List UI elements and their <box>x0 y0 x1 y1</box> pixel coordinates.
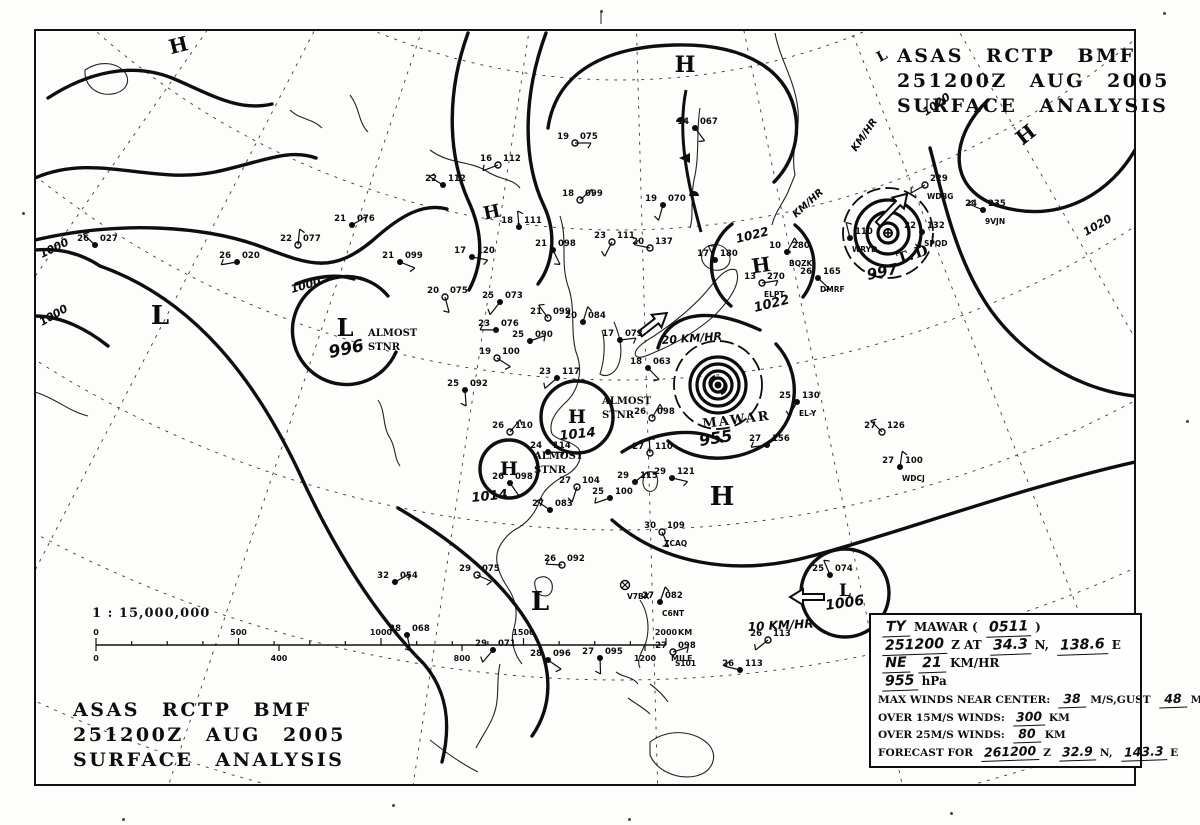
printed-label: ( <box>972 620 978 634</box>
margin-speck <box>1163 12 1166 15</box>
station-plot: 20084 <box>565 307 606 325</box>
handwritten-value: TY <box>882 619 911 638</box>
station-value: 20 <box>427 286 439 296</box>
coastline <box>616 672 668 714</box>
station-plot: 26027 <box>77 232 118 248</box>
handwritten-label: 996 <box>327 336 366 363</box>
station-plot: 27083 <box>532 498 573 513</box>
scale-bar: 0500100015002000KM04008001200MILE <box>92 621 712 667</box>
printed-label: hPa <box>922 674 947 688</box>
station-value: 27 <box>559 476 571 486</box>
info-box-row: FORECAST FOR261200Z32.9N,143.3E <box>878 744 1133 762</box>
station-value: 104 <box>582 476 600 486</box>
handwritten-label: 1006 <box>824 593 865 614</box>
station-value: 18 <box>630 357 642 367</box>
printed-label: M/S,GUST <box>1090 694 1150 706</box>
station-value: 19 <box>479 347 491 357</box>
handwritten-label: KM/HR <box>849 117 879 154</box>
station-value: 26 <box>634 407 646 417</box>
station-value: 092 <box>470 379 488 389</box>
typhoon-info-box: TYMAWAR(0511)251200Z AT34.3N,138.6ENE21K… <box>869 613 1142 768</box>
coastline <box>85 64 128 95</box>
station-plot: 21098 <box>535 239 576 264</box>
pressure-center-l: L <box>874 47 890 66</box>
info-box-row: OVER 25M/S WINDS:80KM <box>878 726 1133 744</box>
handwritten-value: 48 <box>1158 691 1187 708</box>
station-plot: 27126 <box>864 419 905 435</box>
printed-label: N, <box>1100 747 1113 759</box>
info-box-row: OVER 15M/S WINDS:300KM <box>878 709 1133 727</box>
station-plot: 18099 <box>562 189 603 203</box>
station-plot: 32054 <box>377 571 418 585</box>
coastline <box>430 740 478 772</box>
pressure-center-h: H <box>481 201 502 225</box>
handwritten-label: 20 KM/HR <box>661 330 722 347</box>
station-value: 092 <box>567 554 585 564</box>
isobar <box>35 155 316 178</box>
station-value: 084 <box>588 311 606 321</box>
station-plot: 17180 <box>697 245 738 263</box>
station-plot: 23111 <box>594 231 635 256</box>
isobar <box>548 45 797 182</box>
station-value: 26 <box>219 251 231 261</box>
station-value: 26 <box>544 554 556 564</box>
station-value: 098 <box>558 239 576 249</box>
handwritten-label: 955 <box>698 426 734 450</box>
station-plot: 22077 <box>280 229 321 248</box>
margin-speck <box>122 818 125 821</box>
svg-text:1000: 1000 <box>370 628 393 637</box>
station-value: 100 <box>905 456 923 466</box>
station-plot: 17073 <box>602 329 643 344</box>
station-value: 20 <box>565 311 577 321</box>
printed-label: OVER 15M/S WINDS: <box>878 712 1005 724</box>
station-value: 121 <box>677 467 695 477</box>
station-value: ZCAQ <box>664 539 687 548</box>
title-block-bottom-left: ASAS RCTP BMF 251200Z AUG 2005 SURFACE A… <box>73 698 346 773</box>
movement-arrow-icon <box>790 589 824 605</box>
station-value: 130 <box>802 391 820 401</box>
printed-label: E <box>1170 747 1178 759</box>
station-value: 112 <box>503 154 521 164</box>
station-value: 16 <box>480 154 492 164</box>
station-value: 27 <box>632 442 644 452</box>
printed-label: N, <box>1035 638 1049 652</box>
station-plot: 19075 <box>557 132 598 148</box>
station-plot: 27110 <box>632 437 673 456</box>
station-plot: 20075 <box>427 286 468 312</box>
station-plot: 25100 <box>592 487 633 503</box>
station-value: 18 <box>562 189 574 199</box>
station-value: 29 <box>654 467 666 477</box>
station-plot: 10280BQZK <box>769 238 813 268</box>
station-plot: 25090 <box>512 330 553 344</box>
isobar <box>100 266 447 762</box>
station-value: 126 <box>887 421 905 431</box>
printed-label: MAWAR <box>914 620 968 634</box>
station-plot: 27100WDCJ <box>882 451 925 483</box>
station-value: 21 <box>535 239 547 249</box>
svg-text:800: 800 <box>454 654 471 663</box>
station-value: 020 <box>242 251 260 261</box>
station-value: 063 <box>653 357 671 367</box>
station-value: 113 <box>745 659 763 669</box>
station-value: 26 <box>722 659 734 669</box>
margin-speck <box>600 10 603 13</box>
info-box-row: 251200Z AT34.3N,138.6E <box>878 637 1133 655</box>
isobar <box>612 462 1135 566</box>
handwritten-value: 21 <box>918 655 947 674</box>
station-value: 26 <box>77 234 89 244</box>
station-value: 098 <box>515 472 533 482</box>
margin-speck <box>1186 420 1189 423</box>
margin-speck <box>392 804 395 807</box>
station-value: 23 <box>594 231 606 241</box>
station-value: 21 <box>382 251 394 261</box>
station-value: EL-Y <box>799 409 817 418</box>
station-value: 29 <box>459 564 471 574</box>
station-value: 075 <box>580 132 598 142</box>
handwritten-label: KM/HR <box>791 187 826 220</box>
handwritten-value: 251200 <box>882 636 948 656</box>
station-plot: 25074 <box>812 560 853 578</box>
station-plot: 19070 <box>645 194 686 220</box>
station-plot: 17120 <box>454 246 495 265</box>
coastline <box>35 392 88 416</box>
handwritten-label: 1022 <box>752 293 791 316</box>
station-value: 26 <box>492 421 504 431</box>
pressure-center-h: H <box>568 406 586 428</box>
station-value: 26 <box>492 472 504 482</box>
station-value: 21 <box>530 307 542 317</box>
handwritten-value: 300 <box>1013 708 1046 726</box>
station-value: 21 <box>334 214 346 224</box>
station-value: 27 <box>749 434 761 444</box>
printed-label: Z <box>1043 747 1051 759</box>
handwritten-label: 1014 <box>471 487 509 506</box>
station-value: 073 <box>505 291 523 301</box>
station-value: 027 <box>100 234 118 244</box>
station-value: 110 <box>655 442 673 452</box>
station-value: 17 <box>697 249 709 259</box>
station-value: 073 <box>625 329 643 339</box>
station-value: 25 <box>482 291 494 301</box>
pressure-center-h: H <box>675 52 696 78</box>
station-value: 110 <box>855 227 873 237</box>
handwritten-value: 138.6 <box>1057 636 1108 656</box>
station-value: 082 <box>665 591 683 601</box>
handwritten-value: 0511 <box>985 618 1031 638</box>
handwritten-label: 1000 <box>37 302 70 329</box>
station-value: 27 <box>864 421 876 431</box>
coastline <box>772 33 798 225</box>
margin-speck <box>950 812 953 815</box>
station-value: 067 <box>700 117 718 127</box>
station-value: WDBG <box>927 192 953 201</box>
station-value: 075 <box>450 286 468 296</box>
handwritten-value: 80 <box>1013 726 1042 743</box>
station-value: 18 <box>501 216 513 226</box>
printed-label: M/S <box>1191 694 1200 706</box>
station-value: 156 <box>772 434 790 444</box>
station-value: 090 <box>535 330 553 340</box>
station-value: 22 <box>425 174 437 184</box>
center-note-label: ALMOST <box>367 328 418 339</box>
info-box-row: MAX WINDS NEAR CENTER:38M/S,GUST48M/S <box>878 691 1133 709</box>
isobar <box>48 70 272 106</box>
handwritten-value: 261200 <box>981 742 1040 761</box>
station-plot: 25130EL-Y <box>779 391 820 418</box>
margin-speck <box>22 212 25 215</box>
station-plot: 26098 <box>634 404 675 421</box>
handwritten-value: 955 <box>882 672 918 691</box>
station-plot: 21099 <box>382 251 423 272</box>
station-value: 074 <box>835 564 853 574</box>
svg-text:500: 500 <box>230 628 247 637</box>
station-value: 27 <box>882 456 894 466</box>
title-line: 251200Z AUG 2005 <box>73 723 346 748</box>
grid-meridian <box>400 0 620 825</box>
station-value: 075 <box>482 564 500 574</box>
station-value: 165 <box>823 267 841 277</box>
station-value: 109 <box>667 521 685 531</box>
station-plot: 18063 <box>630 357 671 381</box>
station-value: WDCJ <box>902 474 925 483</box>
station-value: 076 <box>501 319 519 329</box>
station-plot: 25092 <box>447 379 488 406</box>
station-plot: 229WDBG <box>911 174 953 201</box>
handwritten-label: 1014 <box>559 425 597 444</box>
station-value: 132 <box>927 221 945 231</box>
station-value: 054 <box>400 571 418 581</box>
station-value: 27 <box>532 499 544 509</box>
coastline <box>290 95 368 132</box>
coastline <box>476 664 500 748</box>
station-value: 30 <box>644 521 656 531</box>
station-value: 120 <box>477 246 495 256</box>
printed-label: E <box>1112 638 1121 652</box>
station-value: 25 <box>447 379 459 389</box>
station-value: 280 <box>792 241 810 251</box>
svg-text:1200: 1200 <box>634 654 657 663</box>
station-value: 070 <box>668 194 686 204</box>
station-value: 17 <box>602 329 614 339</box>
station-value: 229 <box>930 174 948 184</box>
svg-text:400: 400 <box>271 654 288 663</box>
station-value: 24 <box>965 199 977 209</box>
svg-text:2000: 2000 <box>655 628 678 637</box>
scale-ratio: 1 : 15,000,000 <box>92 606 712 621</box>
station-value: 077 <box>303 234 321 244</box>
handwritten-label: 997 <box>865 260 900 284</box>
station-value: 25 <box>779 391 791 401</box>
station-value: 23 <box>478 319 490 329</box>
station-value: 100 <box>615 487 633 497</box>
station-value: 13 <box>744 272 756 282</box>
station-value: 22 <box>280 234 292 244</box>
svg-text:1500: 1500 <box>512 628 535 637</box>
printed-label: FORECAST FOR <box>878 747 973 759</box>
coastline <box>650 733 714 777</box>
printed-label: ) <box>1035 620 1041 634</box>
map-scale: 1 : 15,000,000 0500100015002000KM0400800… <box>92 606 712 671</box>
pressure-center-h: H <box>1011 119 1041 150</box>
station-plot: 26020 <box>219 251 260 265</box>
station-value: 24 <box>530 441 542 451</box>
station-plot: 19100 <box>479 347 520 369</box>
weather-chart-page: T.DMAWARHLHHHLLHLALMOSTSTNRHALMOSTSTNRHA… <box>0 0 1200 825</box>
handwritten-value: 34.3 <box>989 636 1031 655</box>
station-plot: 18111 <box>501 211 542 230</box>
station-value: 22 <box>904 221 916 231</box>
svg-text:KM: KM <box>678 628 692 637</box>
station-value: 111 <box>524 216 542 226</box>
station-value: 32 <box>377 571 389 581</box>
station-value: 26 <box>800 267 812 277</box>
margin-speck <box>628 818 631 821</box>
title-line: ASAS RCTP BMF <box>73 698 346 723</box>
handwritten-label: 1022 <box>734 224 770 246</box>
pressure-center-l: L <box>151 301 169 331</box>
station-value: 137 <box>655 237 673 247</box>
svg-text:MILE: MILE <box>671 654 693 663</box>
handwritten-value: NE <box>882 655 911 674</box>
printed-label: KM <box>1045 729 1066 741</box>
station-plot: 29115 <box>617 471 658 485</box>
station-value: 20 <box>632 237 644 247</box>
station-plot: 26092 <box>544 554 585 568</box>
station-value: 29 <box>617 471 629 481</box>
coastline <box>378 400 400 466</box>
info-box-row: 955hPa <box>878 673 1133 691</box>
title-line: SURFACE ANALYSIS <box>73 748 346 773</box>
station-value: 19 <box>645 194 657 204</box>
station-plot: 25073 <box>482 291 523 315</box>
station-value: 27 <box>642 591 654 601</box>
station-value: 9VJN <box>985 217 1005 226</box>
station-value: SPQD <box>924 239 948 248</box>
center-note-label: STNR <box>602 410 635 421</box>
station-value: 112 <box>448 174 466 184</box>
station-value: 19 <box>557 132 569 142</box>
handwritten-value: 38 <box>1058 691 1087 708</box>
station-plot: 20137 <box>632 237 673 251</box>
printed-label: Z AT <box>951 638 982 652</box>
station-plot: 21076 <box>334 214 375 228</box>
station-plot: 110WRYD <box>846 222 877 254</box>
center-note-label: STNR <box>368 342 401 353</box>
station-plot: 22112 <box>425 174 466 188</box>
svg-text:0: 0 <box>93 628 99 637</box>
station-plot: 16112 <box>480 154 521 171</box>
station-value: 23 <box>539 367 551 377</box>
handwritten-label: 10 KM/HR <box>747 617 813 634</box>
title-block-top-right: ASAS RCTP BMF 251200Z AUG 2005 SURFACE A… <box>897 44 1170 119</box>
isobar <box>711 224 732 306</box>
svg-text:0: 0 <box>93 654 99 663</box>
station-value: 235 <box>988 199 1006 209</box>
station-value: WRYD <box>852 245 877 254</box>
station-value: 083 <box>555 499 573 509</box>
station-value: 098 <box>657 407 675 417</box>
station-value: 117 <box>562 367 580 377</box>
handwritten-value: 143.3 <box>1120 743 1166 761</box>
station-value: 099 <box>405 251 423 261</box>
station-plot: 26110 <box>492 420 533 435</box>
printed-label: OVER 25M/S WINDS: <box>878 729 1005 741</box>
handwritten-value: 32.9 <box>1059 743 1096 761</box>
printed-label: MAX WINDS NEAR CENTER: <box>878 694 1050 706</box>
station-value: DMRF <box>820 285 845 294</box>
station-value: 25 <box>592 487 604 497</box>
station-plot: 26113 <box>722 659 763 673</box>
info-box-row: NE21KM/HR <box>878 655 1133 673</box>
station-value: 25 <box>812 564 824 574</box>
station-value: 100 <box>502 347 520 357</box>
station-plot: 29121 <box>654 467 695 486</box>
station-plot: 242359VJN <box>965 199 1006 226</box>
station-plot: 22132SPQD <box>904 221 947 248</box>
pressure-center-h: H <box>166 31 190 59</box>
station-value: 17 <box>454 246 466 256</box>
info-box-row: TYMAWAR(0511) <box>878 619 1133 637</box>
printed-label: KM/HR <box>950 656 999 670</box>
title-line: ASAS RCTP BMF <box>897 44 1170 69</box>
printed-label: KM <box>1049 712 1070 724</box>
center-note-label: STNR <box>534 465 567 476</box>
station-value: 14 <box>677 117 689 127</box>
handwritten-label: 1020 <box>1081 212 1114 239</box>
station-value: 110 <box>515 421 533 431</box>
pressure-center-h: H <box>710 482 735 512</box>
station-value: 270 <box>767 272 785 282</box>
station-value: 180 <box>720 249 738 259</box>
title-line: 251200Z AUG 2005 <box>897 69 1170 94</box>
station-value: 076 <box>357 214 375 224</box>
station-value: 099 <box>585 189 603 199</box>
title-line: SURFACE ANALYSIS <box>897 94 1170 119</box>
center-note-label: ALMOST <box>601 396 652 407</box>
station-value: 10 <box>769 241 781 251</box>
station-value: 25 <box>512 330 524 340</box>
